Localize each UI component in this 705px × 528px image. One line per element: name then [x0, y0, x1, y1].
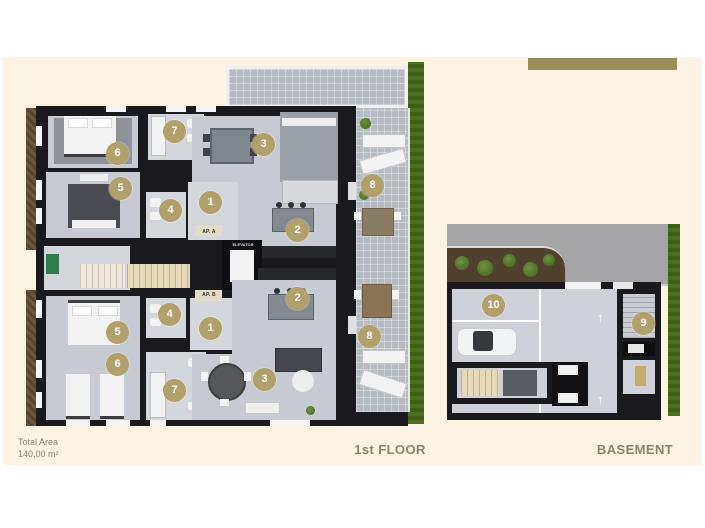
garage-entrance: [565, 282, 601, 289]
window: [36, 300, 42, 318]
drive-direction-arrow: ↑: [597, 392, 604, 407]
terrace-door: [196, 106, 216, 112]
elevator-opening: [588, 376, 596, 392]
pillow: [68, 118, 88, 128]
window: [150, 420, 166, 426]
room-marker-6-lower: 6: [106, 353, 129, 376]
twin-bed: [100, 374, 124, 419]
kitchen-counter-lower: [258, 268, 336, 280]
chair: [354, 212, 361, 220]
total-area-block: Total Area 140,00 m²: [18, 436, 59, 460]
total-area-label: Total Area: [18, 436, 59, 448]
window: [36, 180, 42, 200]
window: [36, 126, 42, 146]
round-dining-table-lower: [208, 363, 246, 401]
basement-plan: ↑ ↑ 10 9: [447, 218, 679, 430]
room-marker-1-lower: 1: [199, 317, 222, 340]
chair: [203, 148, 210, 156]
outdoor-table-upper: [362, 208, 394, 236]
room-marker-1-upper: 1: [199, 191, 222, 214]
chair: [203, 134, 210, 142]
room-marker-8-upper: 8: [361, 174, 384, 197]
sun-lounger: [362, 350, 406, 364]
basement-stairs: [461, 370, 499, 396]
bush: [477, 260, 493, 276]
pillow: [72, 306, 92, 316]
first-floor-title: 1st FLOOR: [330, 442, 450, 457]
bush: [503, 254, 516, 267]
stool: [288, 202, 294, 208]
storage-door: [635, 366, 646, 386]
window: [36, 360, 42, 378]
apartment-a-label: AP. A: [196, 229, 222, 235]
room-marker-4-upper: 4: [159, 199, 182, 222]
stool: [274, 288, 280, 294]
kitchen-counter-upper: [258, 246, 336, 258]
plant: [306, 406, 315, 415]
garage-door: [613, 282, 633, 289]
sun-lounger: [362, 134, 406, 148]
room-marker-6-upper: 6: [106, 142, 129, 165]
chair: [354, 290, 361, 299]
dresser: [80, 174, 108, 181]
plant: [360, 118, 371, 129]
apartment-b-label: AP. B: [196, 292, 222, 298]
total-area-value: 140,00 m²: [18, 448, 59, 460]
balcony-door-lower: [348, 316, 356, 334]
room-marker-3-upper: 3: [252, 133, 275, 156]
parking-line: [452, 320, 539, 322]
basement-title: BASEMENT: [575, 442, 695, 457]
room-marker-2-lower: 2: [286, 287, 309, 310]
stool: [300, 202, 306, 208]
bush: [523, 262, 538, 277]
pillow: [98, 306, 118, 316]
chair: [220, 356, 229, 363]
chair: [392, 290, 399, 299]
room-marker-2-upper: 2: [286, 219, 309, 242]
window: [106, 420, 130, 426]
roof-terrace: [226, 66, 408, 108]
chair: [394, 212, 401, 220]
window: [270, 420, 310, 426]
dining-table-upper: [210, 128, 254, 164]
outdoor-table-lower: [362, 284, 392, 318]
first-floor-plan: ELEVATOR: [10, 62, 430, 428]
elevator-cab: [230, 250, 254, 282]
pillow: [92, 118, 112, 128]
chair: [201, 372, 208, 381]
elevator-label: ELEVATOR: [228, 242, 258, 247]
hedge-strip: [668, 224, 680, 416]
window: [36, 392, 42, 408]
stair-flight-b: [127, 264, 190, 288]
room-marker-4-lower: 4: [158, 303, 181, 326]
room-marker-10: 10: [482, 294, 505, 317]
round-rug: [292, 370, 314, 392]
sofa-upper: [282, 180, 338, 204]
hedge-strip: [408, 62, 424, 424]
room-marker-7-upper: 7: [163, 120, 186, 143]
chair: [220, 399, 229, 406]
elevator-pocket: [558, 365, 578, 375]
stool: [276, 202, 282, 208]
window: [106, 106, 126, 112]
car-windshield: [473, 331, 493, 351]
twin-bed: [66, 374, 90, 419]
window: [36, 208, 42, 224]
window: [166, 106, 186, 112]
room-marker-5-upper: 5: [109, 177, 132, 200]
tv-console-upper: [282, 118, 336, 126]
stair-flight-a: [80, 264, 125, 288]
bush: [543, 254, 555, 266]
basement-elevator-cab: [628, 344, 644, 353]
room-marker-3-lower: 3: [253, 368, 276, 391]
pillows: [72, 220, 116, 228]
elevator-pocket: [558, 393, 578, 403]
tv-cabinet-lower: [246, 403, 279, 413]
room-marker-8-lower: 8: [358, 325, 381, 348]
bush: [455, 256, 469, 270]
sofa-lower: [275, 348, 322, 372]
gold-accent-bar: [528, 58, 677, 70]
chair: [244, 372, 251, 381]
room-marker-9: 9: [632, 312, 655, 335]
page: ELEVATOR: [0, 0, 705, 528]
balcony-door-upper: [348, 182, 356, 200]
room-marker-5-lower: 5: [106, 321, 129, 344]
window: [66, 420, 90, 426]
room-marker-7-lower: 7: [163, 379, 186, 402]
drive-direction-arrow: ↑: [597, 310, 604, 325]
exit-sign: [46, 254, 59, 274]
stair-landing: [503, 370, 537, 396]
